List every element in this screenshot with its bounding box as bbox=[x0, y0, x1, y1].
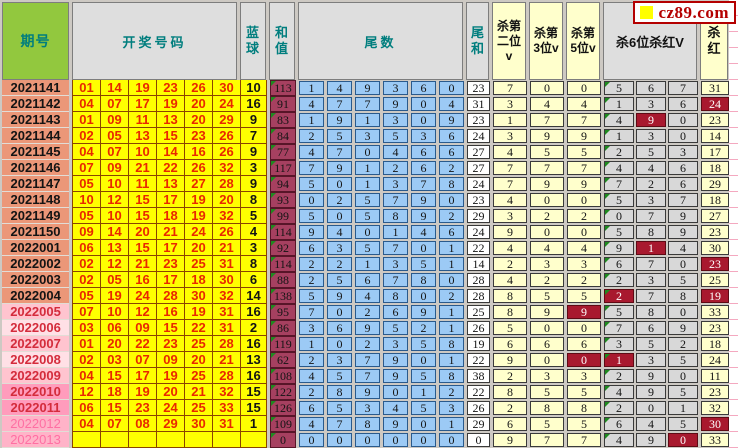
red-ball-cell: 06 bbox=[73, 240, 101, 256]
tail-sum-cell: 0 bbox=[467, 433, 490, 447]
blue-ball-cell: 4 bbox=[241, 224, 267, 240]
tail-cell: 5 bbox=[327, 129, 352, 143]
kill-2nd-cell: 1 bbox=[493, 113, 527, 127]
table-row: 2022009041517192528161084579583823329011 bbox=[2, 368, 738, 384]
red-ball-cell: 18 bbox=[101, 384, 129, 400]
tail-cell: 9 bbox=[355, 81, 380, 95]
balls-group: 04071719202416 bbox=[72, 96, 267, 112]
balls-group: 1012151719208 bbox=[72, 192, 267, 208]
red-ball-cell: 25 bbox=[185, 336, 213, 352]
kill-6th-cell: 2 bbox=[604, 401, 634, 415]
tail-cell: 1 bbox=[299, 337, 324, 351]
blue-ball-cell: 13 bbox=[241, 352, 267, 368]
kill-3rd-cell: 6 bbox=[530, 337, 564, 351]
kill-3rd-cell: 0 bbox=[530, 353, 564, 367]
tail-cell: 3 bbox=[383, 81, 408, 95]
kill-red-cell: 23 bbox=[701, 385, 729, 399]
tail-cell: 0 bbox=[411, 113, 436, 127]
kill-6th-cell: 4 bbox=[604, 113, 634, 127]
red-ball-cell: 21 bbox=[129, 160, 157, 176]
kill-2nd-cell: 7 bbox=[493, 177, 527, 191]
balls-group: 0205161718306 bbox=[72, 272, 267, 288]
tail-cell: 5 bbox=[327, 273, 352, 287]
tail-cell: 7 bbox=[383, 193, 408, 207]
kill-3rd-cell: 7 bbox=[530, 161, 564, 175]
tail-cell: 0 bbox=[439, 433, 464, 447]
kill-5th-cell: 4 bbox=[567, 241, 601, 255]
kill-3rd-cell: 5 bbox=[530, 289, 564, 303]
red-ball-cell: 17 bbox=[157, 272, 185, 288]
red-ball-cell: 19 bbox=[157, 96, 185, 112]
balls-group: 0109111320299 bbox=[72, 112, 267, 128]
period-cell: 2021142 bbox=[2, 96, 69, 112]
red-ball-cell: 29 bbox=[157, 416, 185, 432]
table-row: 20220030205161718306882567802842223525 bbox=[2, 272, 738, 288]
blue-ball-cell: 9 bbox=[241, 144, 267, 160]
kill-red-cell: 27 bbox=[701, 209, 729, 223]
tail-cell: 9 bbox=[355, 385, 380, 399]
balls-group: 0212212325318 bbox=[72, 256, 267, 272]
kill-6th-cell: 7 bbox=[636, 257, 666, 271]
kill-2nd-cell: 9 bbox=[493, 225, 527, 239]
table-row: 20211481012151719208930257902340053718 bbox=[2, 192, 738, 208]
tail-cell: 9 bbox=[355, 321, 380, 335]
tail-cell: 9 bbox=[383, 353, 408, 367]
tail-cell: 9 bbox=[299, 225, 324, 239]
kill-red-cell: 29 bbox=[701, 177, 729, 191]
tail-cell: 5 bbox=[383, 321, 408, 335]
table-row: 20211440205131523267842535362439913014 bbox=[2, 128, 738, 144]
red-ball-cell: 12 bbox=[129, 304, 157, 320]
tail-sum-cell: 23 bbox=[467, 113, 490, 127]
red-ball-cell: 30 bbox=[185, 288, 213, 304]
kill-5th-cell: 2 bbox=[567, 209, 601, 223]
red-ball-cell: 28 bbox=[157, 288, 185, 304]
sum-cell: 83 bbox=[270, 112, 296, 128]
kill-6th-cell: 9 bbox=[604, 241, 634, 255]
tail-cell: 8 bbox=[439, 177, 464, 191]
kill-red-cell: 23 bbox=[701, 321, 729, 335]
kill-red-cell: 30 bbox=[701, 417, 729, 431]
red-ball-cell: 06 bbox=[101, 320, 129, 336]
period-cell: 2021146 bbox=[2, 160, 69, 176]
spreadsheet-margin bbox=[729, 0, 738, 448]
kill-6th-cell: 7 bbox=[668, 81, 698, 95]
kill-6th-cell: 6 bbox=[668, 177, 698, 191]
red-ball-cell: 20 bbox=[185, 96, 213, 112]
tail-cell: 8 bbox=[383, 209, 408, 223]
red-ball-cell: 23 bbox=[129, 400, 157, 416]
tail-cell: 8 bbox=[383, 289, 408, 303]
table-row: 202114204071719202416914779043134413624 bbox=[2, 96, 738, 112]
kill-5th-cell: 9 bbox=[567, 129, 601, 143]
kill-6th-cell: 1 bbox=[604, 97, 634, 111]
red-ball-cell: 14 bbox=[101, 80, 129, 96]
kill-6th-cell: 1 bbox=[604, 353, 634, 367]
red-ball-cell bbox=[185, 432, 213, 448]
kill-6th-cell: 4 bbox=[604, 385, 634, 399]
sum-cell: 84 bbox=[270, 128, 296, 144]
tail-sum-cell: 22 bbox=[467, 241, 490, 255]
period-cell: 2021149 bbox=[2, 208, 69, 224]
table-row: 202201204070829303111094789012965564530 bbox=[2, 416, 738, 432]
red-ball-cell: 07 bbox=[101, 144, 129, 160]
tail-cell: 4 bbox=[439, 97, 464, 111]
table-body: 2021141011419232630101131493602370056731… bbox=[2, 80, 738, 448]
table-row: 202200507101216193116957026912589958033 bbox=[2, 304, 738, 320]
tail-sum-cell: 29 bbox=[467, 209, 490, 223]
kill-red-cell: 25 bbox=[701, 273, 729, 287]
tail-cell: 2 bbox=[439, 289, 464, 303]
balls-group bbox=[72, 432, 267, 448]
kill-6th-cell: 0 bbox=[668, 305, 698, 319]
kill-2nd-cell: 3 bbox=[493, 129, 527, 143]
period-cell: 2022011 bbox=[2, 400, 69, 416]
tail-sum-cell: 23 bbox=[467, 81, 490, 95]
kill-2nd-cell: 2 bbox=[493, 401, 527, 415]
red-ball-cell: 19 bbox=[129, 80, 157, 96]
col-header-tail-sum: 尾 和 bbox=[466, 2, 489, 80]
tail-cell: 0 bbox=[327, 433, 352, 447]
tail-sum-cell: 22 bbox=[467, 385, 490, 399]
red-ball-cell: 19 bbox=[185, 304, 213, 320]
tail-cell: 3 bbox=[439, 401, 464, 415]
tail-cell: 0 bbox=[439, 81, 464, 95]
tail-cell: 3 bbox=[327, 241, 352, 255]
kill-2nd-cell: 7 bbox=[493, 81, 527, 95]
blue-ball-cell bbox=[241, 432, 267, 448]
red-ball-cell: 04 bbox=[73, 144, 101, 160]
red-ball-cell: 15 bbox=[157, 128, 185, 144]
kill-3rd-cell: 5 bbox=[530, 145, 564, 159]
table-row: 20211490510151819325995058922932207927 bbox=[2, 208, 738, 224]
tail-sum-cell: 27 bbox=[467, 145, 490, 159]
kill-5th-cell: 0 bbox=[567, 321, 601, 335]
tail-cell: 3 bbox=[299, 321, 324, 335]
tail-sum-cell: 24 bbox=[467, 225, 490, 239]
balls-group: 0205131523267 bbox=[72, 128, 267, 144]
tail-cell: 0 bbox=[411, 289, 436, 303]
red-ball-cell: 11 bbox=[129, 112, 157, 128]
tail-cell: 7 bbox=[299, 161, 324, 175]
red-ball-cell: 24 bbox=[185, 224, 213, 240]
red-ball-cell: 03 bbox=[73, 320, 101, 336]
sum-cell: 86 bbox=[270, 320, 296, 336]
tail-cell: 5 bbox=[299, 289, 324, 303]
sum-cell: 94 bbox=[270, 176, 296, 192]
red-ball-cell: 05 bbox=[73, 208, 101, 224]
col-header-sum: 和 值 bbox=[269, 2, 295, 80]
kill-6th-cell: 0 bbox=[604, 209, 634, 223]
table-row: 2022011061523242533151266534532628820132 bbox=[2, 400, 738, 416]
col-header-kill-2nd: 杀第 二位 v bbox=[492, 2, 526, 80]
tail-cell: 9 bbox=[383, 369, 408, 383]
tail-cell: 5 bbox=[299, 177, 324, 191]
kill-5th-cell: 7 bbox=[567, 161, 601, 175]
kill-6th-cell: 6 bbox=[604, 257, 634, 271]
tail-cell: 7 bbox=[355, 369, 380, 383]
tail-cell: 2 bbox=[411, 321, 436, 335]
period-cell: 2022013 bbox=[2, 432, 69, 448]
red-ball-cell: 10 bbox=[129, 144, 157, 160]
red-ball-cell: 15 bbox=[129, 240, 157, 256]
period-cell: 2022009 bbox=[2, 368, 69, 384]
red-ball-cell: 21 bbox=[213, 240, 241, 256]
table-row: 20220130000000097749033 bbox=[2, 432, 738, 448]
kill-6th-cell: 4 bbox=[668, 241, 698, 255]
kill-6th-cell: 5 bbox=[604, 225, 634, 239]
tail-cell: 0 bbox=[355, 145, 380, 159]
tail-cell: 3 bbox=[355, 129, 380, 143]
tail-sum-cell: 24 bbox=[467, 129, 490, 143]
red-ball-cell: 05 bbox=[101, 128, 129, 144]
kill-red-cell: 23 bbox=[701, 113, 729, 127]
kill-3rd-cell: 0 bbox=[530, 225, 564, 239]
tail-cell: 6 bbox=[411, 81, 436, 95]
site-logo-link[interactable]: cz89.com bbox=[633, 1, 736, 24]
kill-6th-cell: 4 bbox=[604, 161, 634, 175]
red-ball-cell: 15 bbox=[101, 368, 129, 384]
table-row: 202115009142021242641149401462490058923 bbox=[2, 224, 738, 240]
kill-6th-cell: 8 bbox=[636, 305, 666, 319]
tail-sum-cell: 26 bbox=[467, 401, 490, 415]
kill-6th-cell: 3 bbox=[636, 353, 666, 367]
table-row: 20220010613151720213926357012244491430 bbox=[2, 240, 738, 256]
tail-cell: 4 bbox=[327, 225, 352, 239]
red-ball-cell: 08 bbox=[129, 416, 157, 432]
red-ball-cell: 01 bbox=[73, 112, 101, 128]
red-ball-cell: 20 bbox=[129, 224, 157, 240]
red-ball-cell: 18 bbox=[157, 208, 185, 224]
tail-cell: 1 bbox=[355, 257, 380, 271]
red-ball-cell: 28 bbox=[213, 176, 241, 192]
tail-cell: 7 bbox=[383, 273, 408, 287]
red-ball-cell: 32 bbox=[213, 288, 241, 304]
period-cell: 2022003 bbox=[2, 272, 69, 288]
tail-cell: 6 bbox=[327, 321, 352, 335]
kill-3rd-cell: 9 bbox=[530, 129, 564, 143]
tail-cell: 3 bbox=[383, 177, 408, 191]
balls-group: 02030709202113 bbox=[72, 352, 267, 368]
kill-6th-cell: 6 bbox=[636, 81, 666, 95]
sum-cell: 77 bbox=[270, 144, 296, 160]
balls-group: 0613151720213 bbox=[72, 240, 267, 256]
red-ball-cell: 05 bbox=[73, 288, 101, 304]
kill-6th-cell: 2 bbox=[604, 369, 634, 383]
red-ball-cell: 21 bbox=[129, 256, 157, 272]
blue-ball-cell: 10 bbox=[241, 80, 267, 96]
tail-cell: 9 bbox=[439, 113, 464, 127]
period-cell: 2022004 bbox=[2, 288, 69, 304]
sum-cell: 93 bbox=[270, 192, 296, 208]
red-ball-cell: 02 bbox=[73, 256, 101, 272]
balls-group: 0407082930311 bbox=[72, 416, 267, 432]
tail-cell: 2 bbox=[439, 161, 464, 175]
kill-6th-cell: 7 bbox=[636, 289, 666, 303]
kill-2nd-cell: 3 bbox=[493, 209, 527, 223]
red-ball-cell: 24 bbox=[129, 288, 157, 304]
red-ball-cell: 17 bbox=[157, 240, 185, 256]
kill-6th-cell: 1 bbox=[636, 241, 666, 255]
red-ball-cell: 26 bbox=[185, 160, 213, 176]
red-ball-cell bbox=[73, 432, 101, 448]
kill-5th-cell: 3 bbox=[567, 369, 601, 383]
kill-3rd-cell: 2 bbox=[530, 273, 564, 287]
red-ball-cell: 06 bbox=[73, 400, 101, 416]
red-ball-cell: 11 bbox=[129, 176, 157, 192]
kill-6th-cell: 6 bbox=[668, 97, 698, 111]
red-ball-cell: 20 bbox=[213, 192, 241, 208]
red-ball-cell: 17 bbox=[129, 368, 157, 384]
kill-6th-cell: 2 bbox=[636, 177, 666, 191]
blue-ball-cell: 5 bbox=[241, 208, 267, 224]
tail-sum-cell: 28 bbox=[467, 289, 490, 303]
sum-cell: 91 bbox=[270, 96, 296, 112]
period-cell: 2022008 bbox=[2, 352, 69, 368]
period-cell: 2022007 bbox=[2, 336, 69, 352]
red-ball-cell bbox=[101, 432, 129, 448]
kill-6th-cell: 7 bbox=[604, 177, 634, 191]
kill-5th-cell: 8 bbox=[567, 401, 601, 415]
red-ball-cell: 09 bbox=[73, 224, 101, 240]
blue-ball-cell: 3 bbox=[241, 160, 267, 176]
kill-5th-cell: 6 bbox=[567, 337, 601, 351]
kill-red-cell: 18 bbox=[701, 193, 729, 207]
tail-cell: 5 bbox=[411, 401, 436, 415]
red-ball-cell: 21 bbox=[185, 384, 213, 400]
blue-ball-cell: 16 bbox=[241, 96, 267, 112]
kill-6th-cell: 5 bbox=[668, 385, 698, 399]
tail-sum-cell: 25 bbox=[467, 305, 490, 319]
kill-6th-cell: 2 bbox=[604, 289, 634, 303]
kill-5th-cell: 9 bbox=[567, 177, 601, 191]
red-ball-cell: 16 bbox=[185, 144, 213, 160]
period-cell: 2021143 bbox=[2, 112, 69, 128]
kill-3rd-cell: 4 bbox=[530, 97, 564, 111]
red-ball-cell: 10 bbox=[101, 208, 129, 224]
blue-ball-cell: 8 bbox=[241, 256, 267, 272]
tail-cell: 0 bbox=[411, 417, 436, 431]
red-ball-cell: 25 bbox=[185, 368, 213, 384]
tail-cell: 3 bbox=[383, 113, 408, 127]
red-ball-cell: 20 bbox=[185, 112, 213, 128]
kill-3rd-cell: 7 bbox=[530, 433, 564, 447]
red-ball-cell: 32 bbox=[213, 160, 241, 176]
period-cell: 2021150 bbox=[2, 224, 69, 240]
tail-cell: 1 bbox=[439, 353, 464, 367]
blue-ball-cell: 7 bbox=[241, 128, 267, 144]
kill-6th-cell: 9 bbox=[636, 113, 666, 127]
red-ball-cell: 25 bbox=[185, 256, 213, 272]
red-ball-cell: 23 bbox=[157, 80, 185, 96]
balls-group: 0709212226323 bbox=[72, 160, 267, 176]
tail-cell: 9 bbox=[411, 209, 436, 223]
tail-cell: 2 bbox=[439, 209, 464, 223]
table-row: 2022007012022232528161191023581966635218 bbox=[2, 336, 738, 352]
tail-sum-cell: 22 bbox=[467, 353, 490, 367]
sum-cell: 122 bbox=[270, 384, 296, 400]
red-ball-cell: 07 bbox=[73, 160, 101, 176]
tail-cell: 1 bbox=[355, 113, 380, 127]
red-ball-cell: 20 bbox=[101, 336, 129, 352]
tail-cell: 1 bbox=[355, 161, 380, 175]
tail-cell: 7 bbox=[327, 145, 352, 159]
period-cell: 2021148 bbox=[2, 192, 69, 208]
red-ball-cell: 22 bbox=[129, 336, 157, 352]
tail-cell: 5 bbox=[411, 369, 436, 383]
kill-red-cell: 23 bbox=[701, 225, 729, 239]
red-ball-cell: 28 bbox=[213, 368, 241, 384]
tail-cell: 2 bbox=[299, 353, 324, 367]
red-ball-cell: 19 bbox=[157, 368, 185, 384]
tail-cell: 5 bbox=[383, 129, 408, 143]
sum-cell: 114 bbox=[270, 224, 296, 240]
tail-cell: 3 bbox=[327, 353, 352, 367]
tail-cell: 0 bbox=[439, 193, 464, 207]
col-header-period: 期号 bbox=[2, 2, 69, 80]
kill-5th-cell: 7 bbox=[567, 113, 601, 127]
kill-6th-cell: 5 bbox=[668, 353, 698, 367]
kill-2nd-cell: 6 bbox=[493, 417, 527, 431]
tail-cell: 0 bbox=[299, 433, 324, 447]
logo-text: cz89.com bbox=[658, 3, 729, 23]
tail-cell: 1 bbox=[299, 113, 324, 127]
balls-group: 04151719252816 bbox=[72, 368, 267, 384]
blue-ball-cell: 3 bbox=[241, 240, 267, 256]
kill-5th-cell: 0 bbox=[567, 81, 601, 95]
red-ball-cell: 09 bbox=[157, 352, 185, 368]
tail-cell: 1 bbox=[355, 177, 380, 191]
tail-cell: 9 bbox=[383, 97, 408, 111]
sum-cell: 62 bbox=[270, 352, 296, 368]
tail-cell: 2 bbox=[383, 161, 408, 175]
tail-cell: 3 bbox=[355, 401, 380, 415]
red-ball-cell: 07 bbox=[73, 304, 101, 320]
red-ball-cell: 12 bbox=[73, 384, 101, 400]
kill-2nd-cell: 9 bbox=[493, 353, 527, 367]
kill-6th-cell: 1 bbox=[604, 129, 634, 143]
kill-6th-cell: 0 bbox=[668, 129, 698, 143]
kill-6th-cell: 7 bbox=[604, 321, 634, 335]
tail-cell: 1 bbox=[439, 241, 464, 255]
kill-3rd-cell: 7 bbox=[530, 113, 564, 127]
red-ball-cell: 16 bbox=[157, 304, 185, 320]
kill-3rd-cell: 8 bbox=[530, 401, 564, 415]
tail-cell: 0 bbox=[299, 193, 324, 207]
red-ball-cell: 10 bbox=[101, 176, 129, 192]
table-row: 20211450407101416269774704662745525317 bbox=[2, 144, 738, 160]
red-ball-cell: 31 bbox=[213, 416, 241, 432]
red-ball-cell: 13 bbox=[101, 240, 129, 256]
tail-cell: 6 bbox=[299, 241, 324, 255]
tail-cell: 5 bbox=[355, 209, 380, 223]
blue-ball-cell: 9 bbox=[241, 176, 267, 192]
tail-cell: 9 bbox=[327, 289, 352, 303]
red-ball-cell: 12 bbox=[101, 256, 129, 272]
tail-cell: 4 bbox=[355, 289, 380, 303]
red-ball-cell: 12 bbox=[101, 192, 129, 208]
kill-6th-cell: 7 bbox=[636, 209, 666, 223]
period-cell: 2022001 bbox=[2, 240, 69, 256]
kill-5th-cell: 7 bbox=[567, 433, 601, 447]
logo-yellow-square-icon bbox=[640, 6, 653, 19]
tail-cell: 3 bbox=[383, 337, 408, 351]
red-ball-cell: 17 bbox=[157, 192, 185, 208]
tail-sum-cell: 19 bbox=[467, 337, 490, 351]
kill-red-cell: 11 bbox=[701, 369, 729, 383]
tail-cell: 9 bbox=[411, 193, 436, 207]
kill-5th-cell: 5 bbox=[567, 289, 601, 303]
